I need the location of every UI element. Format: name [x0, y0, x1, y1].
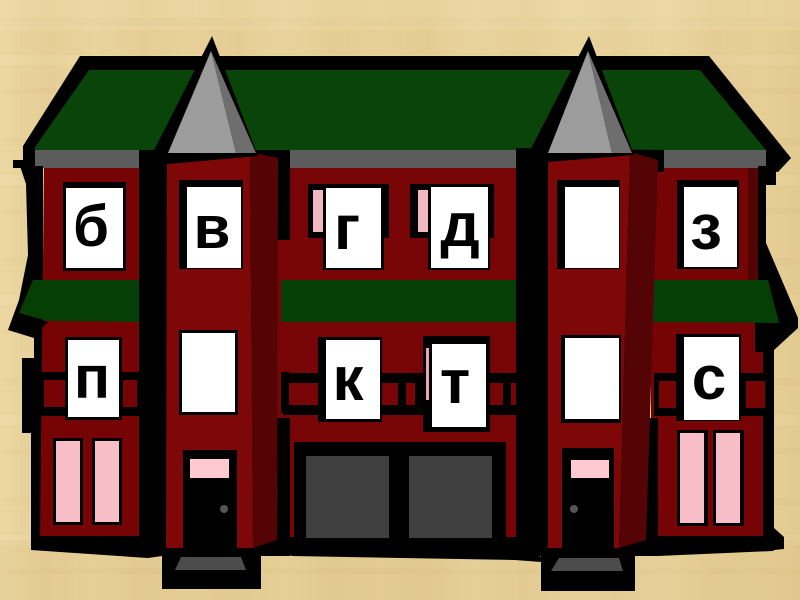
svg-text:з: з	[690, 191, 722, 263]
svg-text:г: г	[334, 193, 360, 263]
svg-text:д: д	[440, 191, 479, 260]
svg-text:в: в	[194, 194, 231, 261]
svg-text:т: т	[440, 348, 470, 417]
svg-text:п: п	[74, 344, 110, 411]
svg-text:с: с	[692, 344, 726, 413]
svg-text:б: б	[73, 194, 109, 259]
svg-text:к: к	[332, 345, 364, 414]
